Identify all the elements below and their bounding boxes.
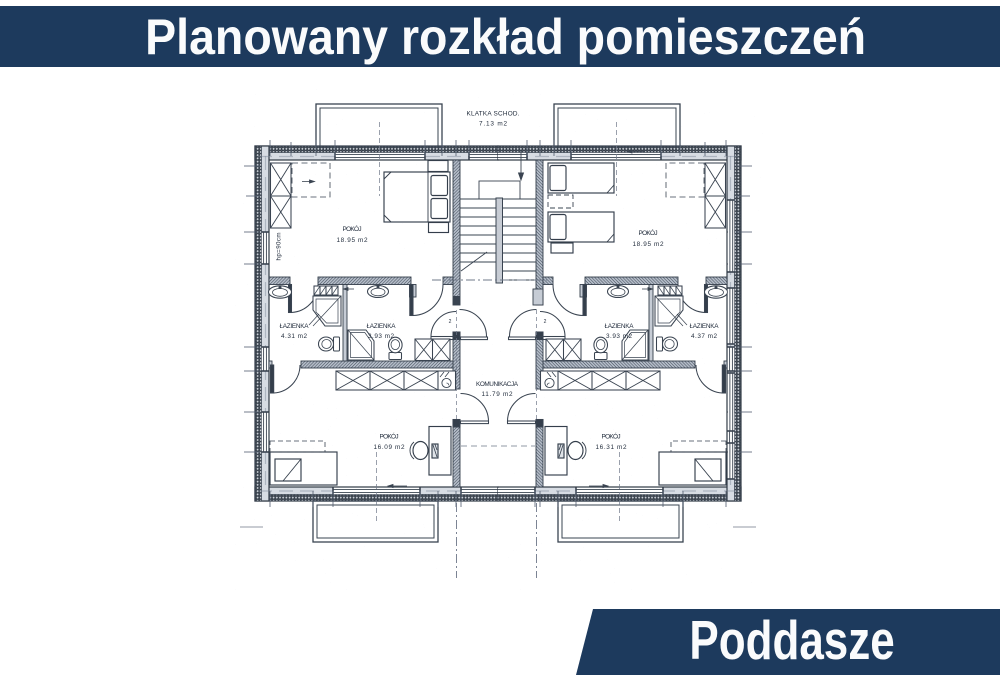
svg-text:4.31 m2: 4.31 m2 [281,333,307,340]
svg-text:ŁAZIENKA: ŁAZIENKA [690,323,720,330]
svg-text:ŁAZIENKA: ŁAZIENKA [280,323,310,330]
svg-text:POKÓJ: POKÓJ [380,432,399,441]
svg-text:16.09 m2: 16.09 m2 [374,444,405,451]
svg-text:11.79 m2: 11.79 m2 [482,391,513,398]
svg-text:7.13 m2: 7.13 m2 [479,121,507,128]
svg-text:KOMUNIKACJA: KOMUNIKACJA [476,381,519,388]
svg-text:POKÓJ: POKÓJ [602,432,621,441]
svg-text:POKÓJ: POKÓJ [639,228,658,237]
svg-text:ŁAZIENKA: ŁAZIENKA [605,323,635,330]
svg-text:3.93 m2: 3.93 m2 [606,333,632,340]
svg-text:2: 2 [449,319,452,325]
svg-text:16.31 m2: 16.31 m2 [596,444,627,451]
svg-text:ŁAZIENKA: ŁAZIENKA [367,323,397,330]
svg-text:3.93 m2: 3.93 m2 [368,333,394,340]
svg-text:KLATKA SCHOD.: KLATKA SCHOD. [467,111,520,118]
svg-text:hp=90cm: hp=90cm [276,233,283,261]
svg-text:18.95 m2: 18.95 m2 [633,241,664,248]
svg-text:POKÓJ: POKÓJ [343,224,362,233]
svg-text:2: 2 [544,319,547,325]
svg-text:4.37 m2: 4.37 m2 [691,333,717,340]
svg-text:18.95 m2: 18.95 m2 [337,237,368,244]
